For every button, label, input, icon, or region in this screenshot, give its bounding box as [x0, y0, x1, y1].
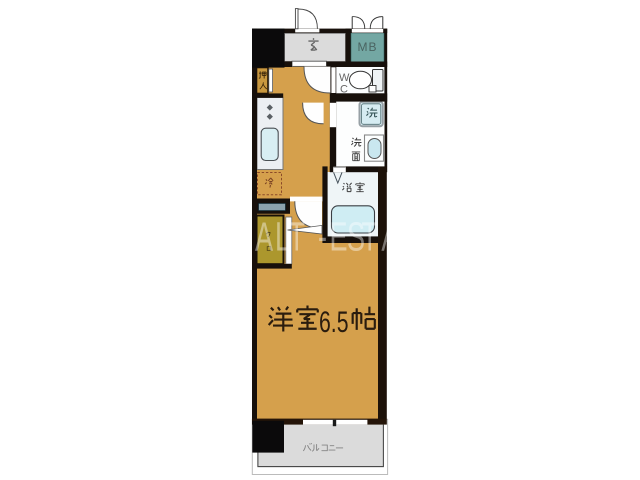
svg-text:ALT-ESTATE: ALT-ESTATE	[255, 215, 435, 260]
svg-text:C: C	[340, 84, 348, 96]
svg-text:W: W	[339, 72, 350, 84]
svg-text:6.5: 6.5	[319, 307, 349, 339]
svg-text:MB: MB	[358, 40, 378, 54]
